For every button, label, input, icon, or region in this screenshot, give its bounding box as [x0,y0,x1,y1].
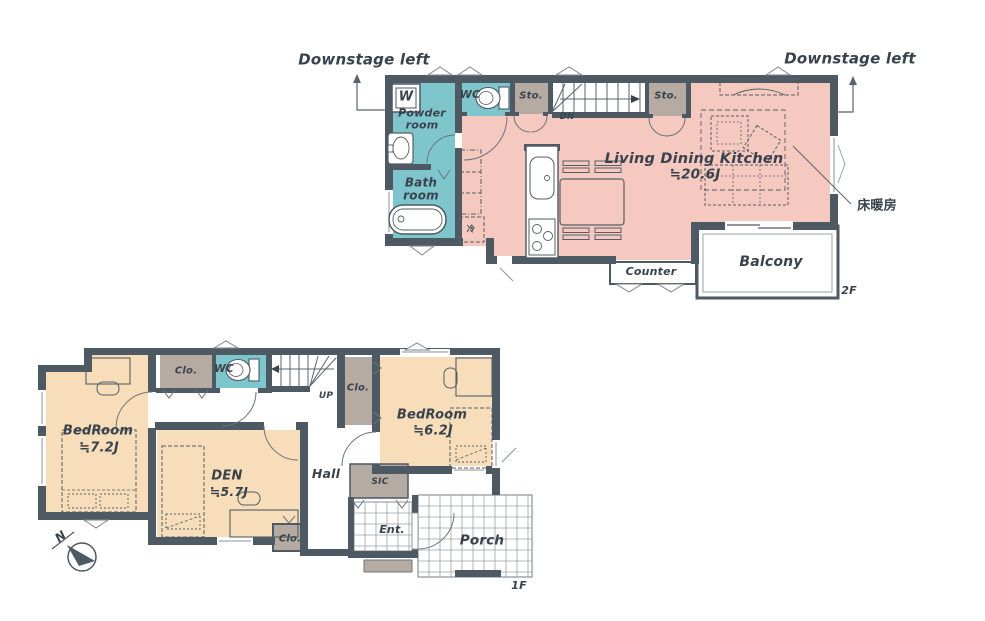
floorplan-drawing [0,0,985,621]
room-sto-left [514,83,548,114]
downstage-arrow-right-icon [836,76,857,112]
kitchen-island [526,146,558,258]
room-sto-right [649,83,686,116]
room-clo-mid [345,357,372,425]
room-clo-top [160,355,212,390]
downstage-arrow-left-icon [353,74,386,110]
porch-tiles [418,495,532,577]
counter-bay [610,262,696,284]
toilet-2f-icon [476,87,509,109]
floor1-plan [38,341,532,577]
room-bedroom-second [380,357,492,472]
floorplan-canvas: Downstage left Downstage left W Powder r… [0,0,985,621]
entrance-tiles [354,502,412,551]
compass-icon [52,532,96,571]
washer-icon [392,84,420,112]
balcony [697,226,838,298]
room-den [157,430,300,537]
powder-sink-icon [388,133,413,164]
room-bedroom-main [46,355,148,512]
entry-step [364,560,412,572]
bathtub-icon [389,205,446,234]
toilet-1f-icon [226,359,259,381]
floor2-plan [353,67,857,298]
